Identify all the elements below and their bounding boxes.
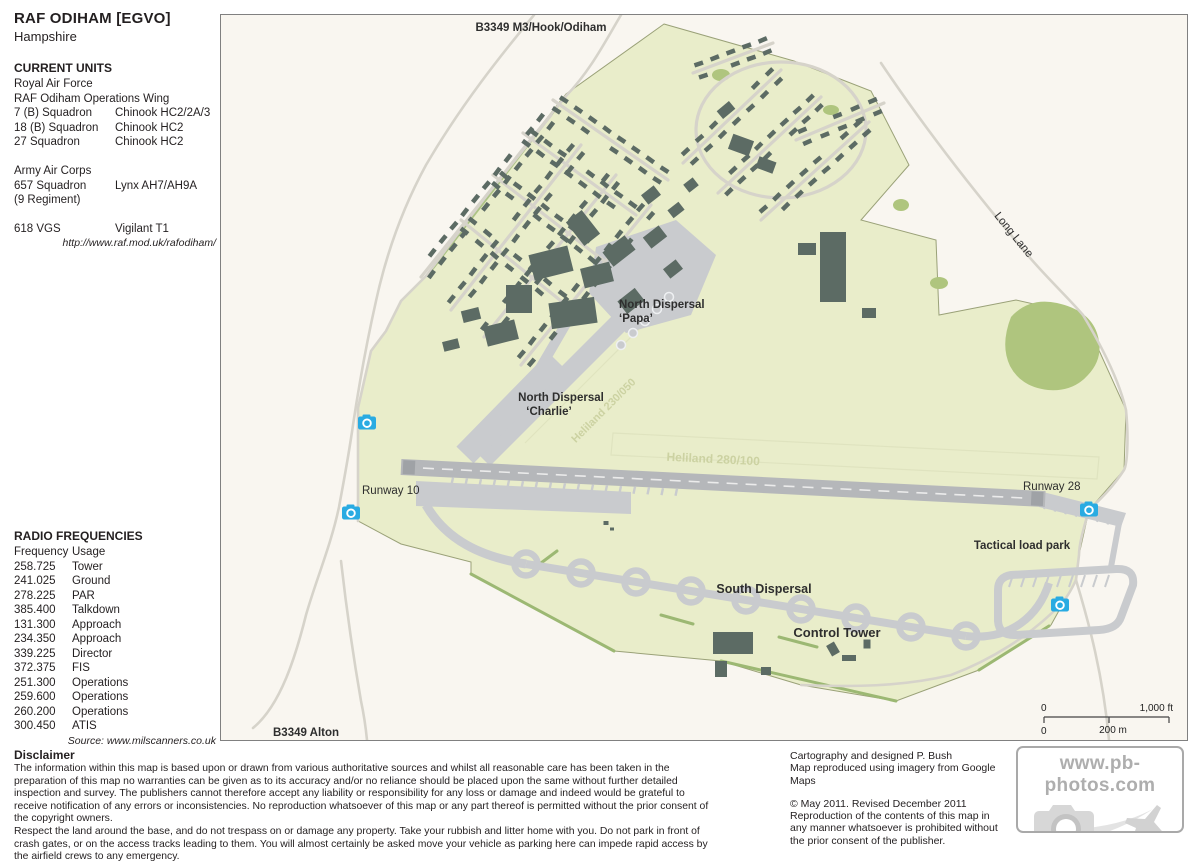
- disclaimer-heading: Disclaimer: [14, 748, 716, 762]
- charlie-label-line1: North Dispersal: [518, 392, 604, 404]
- cartography-credit: Cartography and designed P. Bush: [790, 750, 1005, 762]
- charlie-label-line2: ‘Charlie’: [526, 406, 571, 418]
- photo-point-camera-icon[interactable]: [1051, 597, 1069, 612]
- road-label-bottom: B3349 Alton: [273, 727, 339, 739]
- unit-row: [14, 208, 216, 223]
- photo-point-camera-icon[interactable]: [342, 505, 360, 520]
- tactical-load-park-label: Tactical load park: [974, 540, 1071, 552]
- unit-row: 27 SquadronChinook HC2: [14, 135, 216, 150]
- frequency-row: 260.200Operations: [14, 705, 216, 720]
- loadpark-link: [1111, 523, 1119, 567]
- airfield-map: B3349 M3/Hook/Odiham B3349 Alton Long La…: [221, 15, 1187, 740]
- frequency-row: 339.225Director: [14, 647, 216, 662]
- frequency-row: 259.600Operations: [14, 690, 216, 705]
- road-east-south: [1076, 580, 1109, 740]
- radio-frequencies-rows: 258.725Tower241.025Ground278.225PAR385.4…: [14, 560, 216, 734]
- watermark-text: www.pb-photos.com: [1018, 753, 1182, 797]
- runway-10-label: Runway 10: [362, 485, 420, 497]
- unit-row: 7 (B) SquadronChinook HC2/2A/3: [14, 106, 216, 121]
- long-lane-label: Long Lane: [992, 210, 1036, 260]
- frequency-row: 385.400Talkdown: [14, 603, 216, 618]
- radio-frequencies-panel: RADIO FREQUENCIES Frequency Usage 258.72…: [14, 529, 216, 747]
- publisher-watermark: www.pb-photos.com: [1016, 746, 1184, 833]
- unit-row: [14, 150, 216, 165]
- credits-block: Cartography and designed P. Bush Map rep…: [790, 750, 1005, 847]
- frequency-row: 131.300Approach: [14, 618, 216, 633]
- frequency-row: 251.300Operations: [14, 676, 216, 691]
- frequency-row: 234.350Approach: [14, 632, 216, 647]
- unit-row: 618 VGSVigilant T1: [14, 222, 216, 237]
- current-units-rows: Royal Air ForceRAF Odiham Operations Win…: [14, 77, 216, 237]
- unit-row: 18 (B) SquadronChinook HC2: [14, 121, 216, 136]
- road-label-top: B3349 M3/Hook/Odiham: [475, 22, 606, 34]
- disclaimer-block: Disclaimer The information within this m…: [14, 748, 716, 864]
- tree-clump: [712, 69, 730, 81]
- page-subtitle: Hampshire: [14, 29, 216, 44]
- info-panel: RAF ODIHAM [EGVO] Hampshire CURRENT UNIT…: [14, 10, 216, 249]
- disclaimer-paragraph-1: The information within this map is based…: [14, 763, 716, 826]
- tree-clump: [893, 199, 909, 211]
- tree-clump: [930, 277, 948, 289]
- usage-column-header: Usage: [72, 545, 105, 560]
- imagery-credit: Map reproduced using imagery from Google…: [790, 762, 1005, 787]
- photo-point-camera-icon[interactable]: [358, 415, 376, 430]
- disclaimer-paragraph-2: Respect the land around the base, and do…: [14, 826, 716, 864]
- frequency-row: 241.025Ground: [14, 574, 216, 589]
- unit-row: RAF Odiham Operations Wing: [14, 92, 216, 107]
- south-dispersal-label: South Dispersal: [716, 582, 811, 596]
- unit-row: Royal Air Force: [14, 77, 216, 92]
- frequency-row: 372.375FIS: [14, 661, 216, 676]
- frequencies-source-note: Source: www.milscanners.co.uk: [14, 735, 216, 747]
- raf-website-link[interactable]: http://www.raf.mod.uk/rafodiham/: [14, 237, 216, 249]
- unit-row: 657 SquadronLynx AH7/AH9A: [14, 179, 216, 194]
- unit-row: (9 Regiment): [14, 193, 216, 208]
- road-bottom-spur: [341, 561, 367, 740]
- unit-row: Army Air Corps: [14, 164, 216, 179]
- scale-ft-zero: 0: [1041, 703, 1047, 714]
- frequency-column-header: Frequency: [14, 545, 72, 560]
- frequency-row: 300.450ATIS: [14, 719, 216, 734]
- frequency-row: 258.725Tower: [14, 560, 216, 575]
- scale-m-zero: 0: [1041, 726, 1047, 737]
- reproduction-notice: Reproduction of the contents of this map…: [790, 810, 1005, 847]
- papa-label-line2: ‘Papa’: [619, 313, 653, 325]
- current-units-heading: CURRENT UNITS: [14, 61, 216, 75]
- control-tower-label: Control Tower: [793, 625, 880, 640]
- runway-28-label: Runway 28: [1023, 481, 1081, 493]
- frequency-row: 278.225PAR: [14, 589, 216, 604]
- copyright-line: © May 2011. Revised December 2011: [790, 798, 1005, 810]
- scale-ft-label: 1,000 ft: [1140, 703, 1174, 714]
- map-panel: B3349 M3/Hook/Odiham B3349 Alton Long La…: [220, 14, 1188, 741]
- scale-m-label: 200 m: [1099, 725, 1127, 736]
- papa-label-line1: North Dispersal: [619, 299, 705, 311]
- woodland: [1005, 302, 1099, 391]
- radio-frequencies-heading: RADIO FREQUENCIES: [14, 529, 216, 543]
- camera-jet-logo-icon: [1025, 797, 1175, 833]
- page-title: RAF ODIHAM [EGVO]: [14, 10, 216, 27]
- photo-point-camera-icon[interactable]: [1080, 502, 1098, 517]
- radio-frequencies-header-row: Frequency Usage: [14, 545, 216, 560]
